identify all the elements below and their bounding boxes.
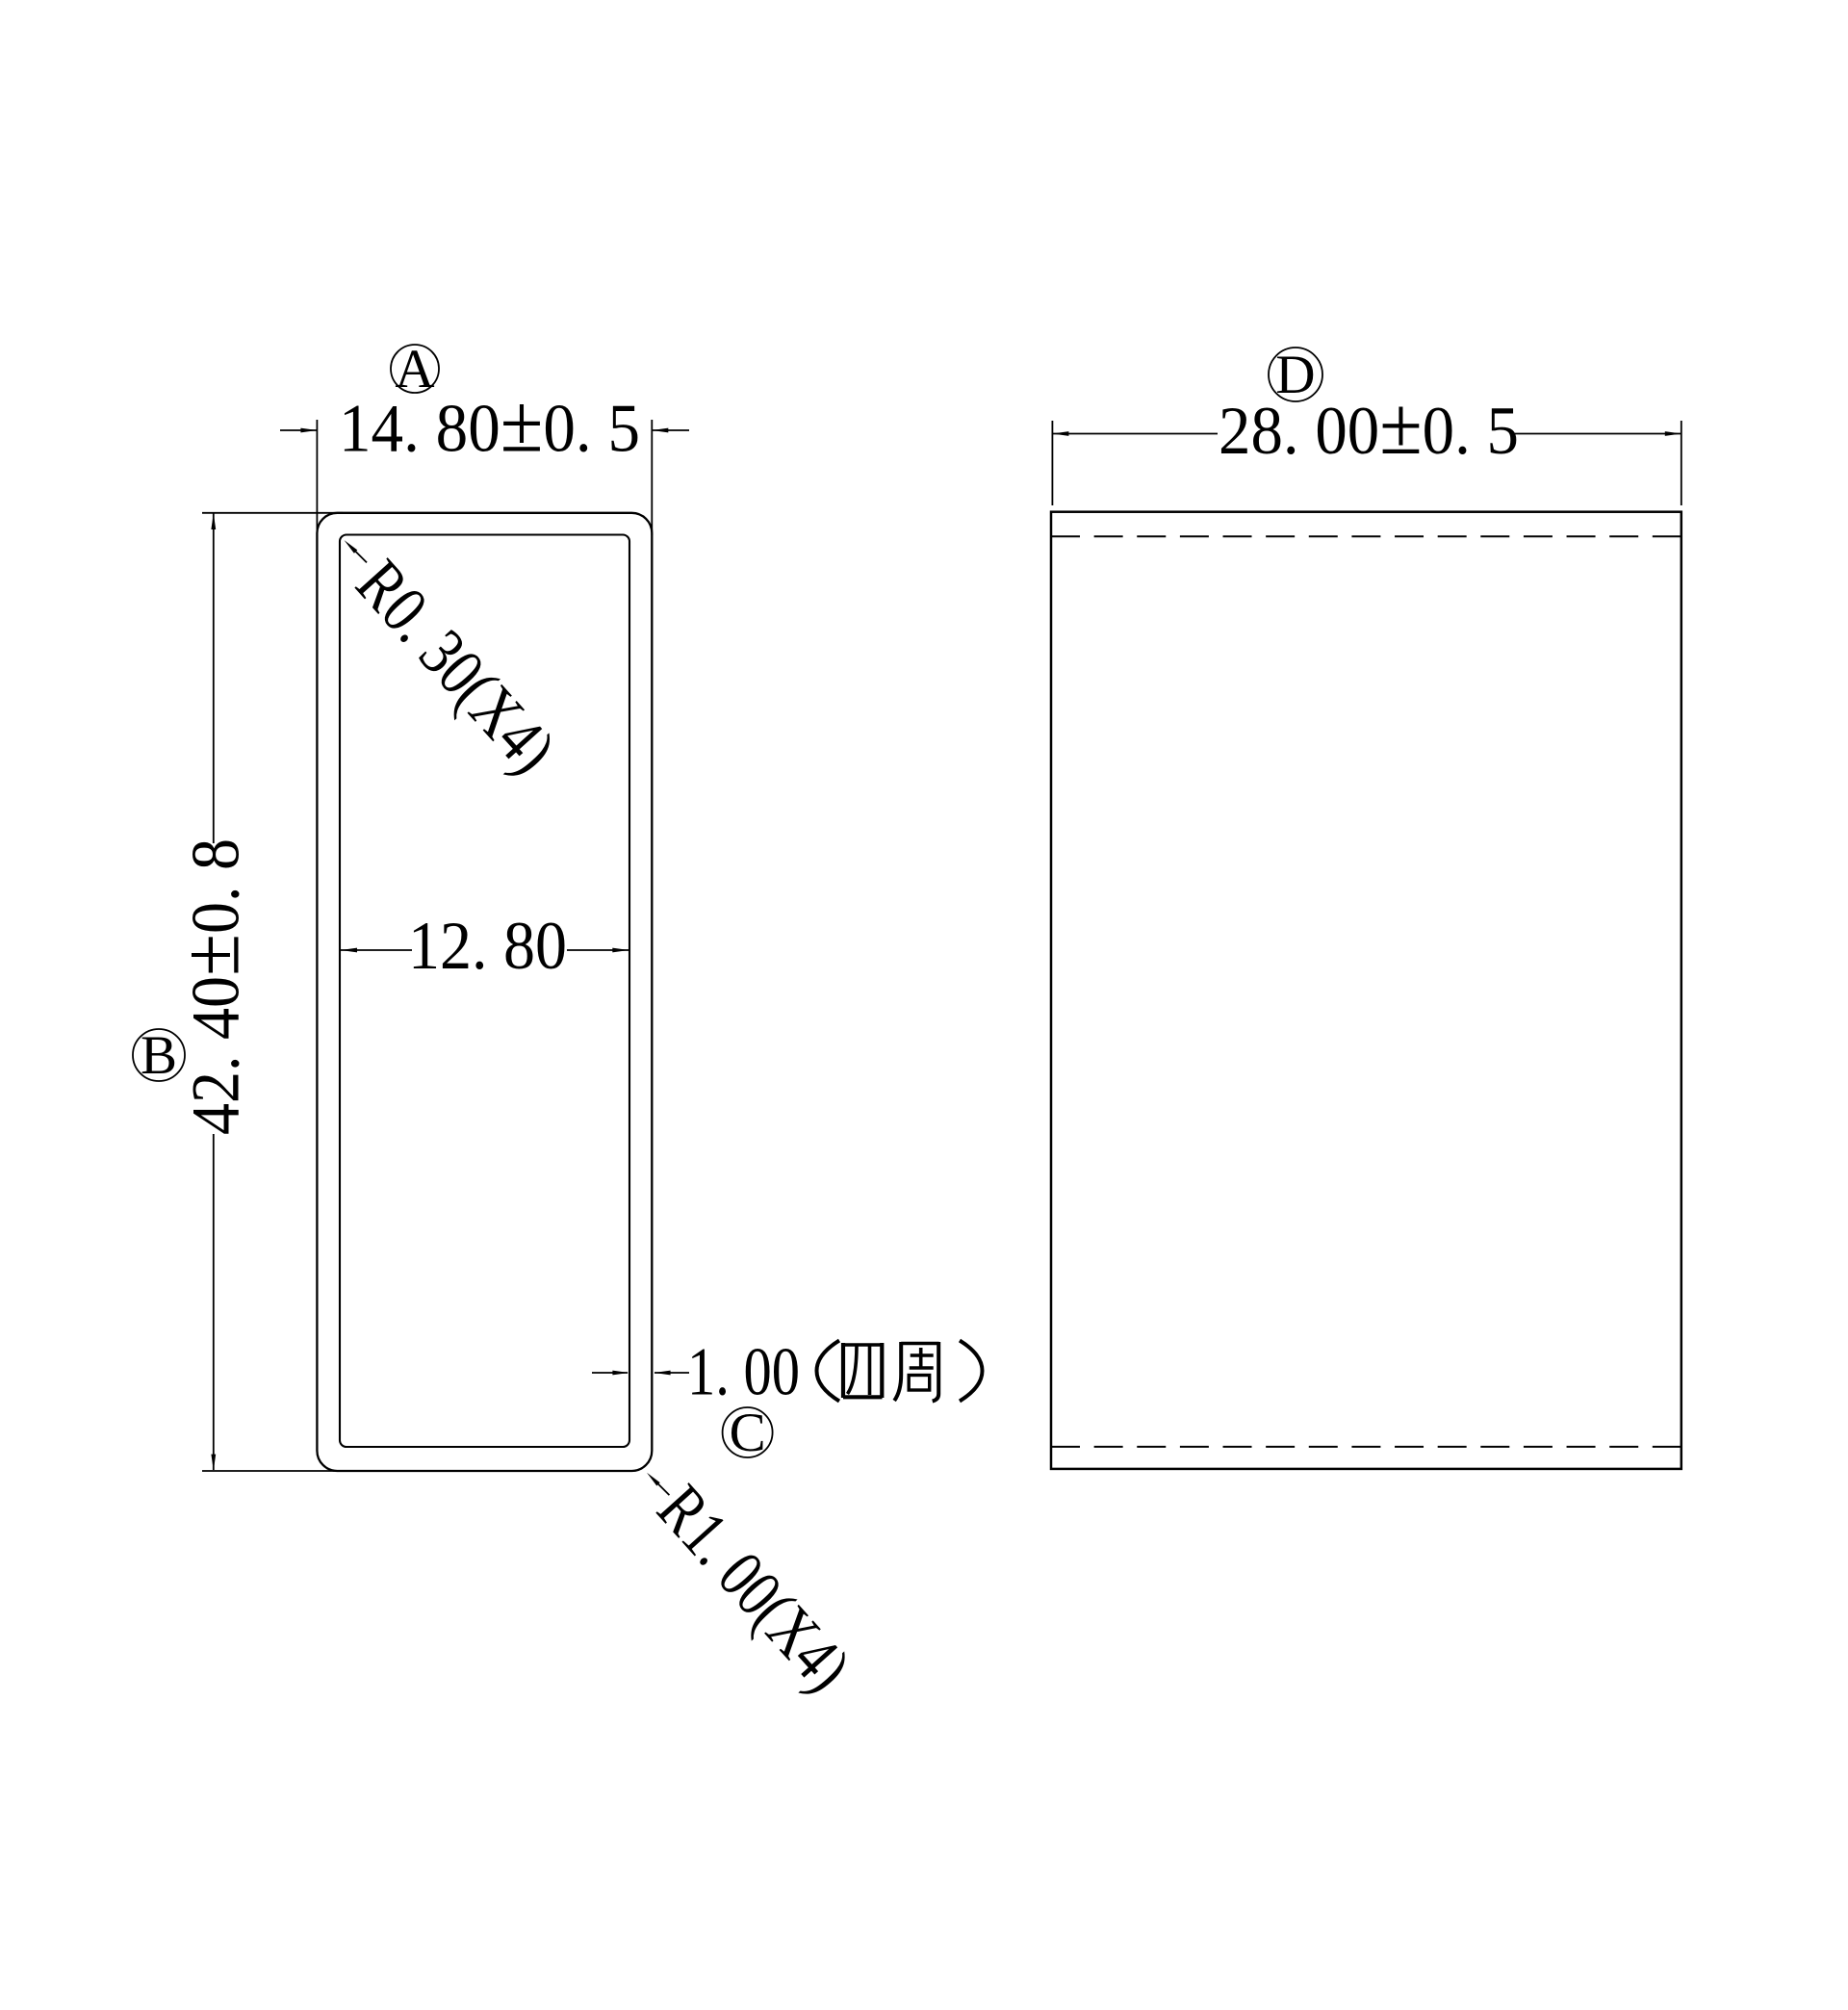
svg-text:B: B [141,1025,177,1086]
svg-text:42. 40±0. 8: 42. 40±0. 8 [165,838,257,1135]
svg-text:C: C [730,1403,766,1463]
svg-text:D: D [1275,345,1315,405]
svg-text:28. 00±0. 5: 28. 00±0. 5 [1219,379,1519,472]
svg-text:12. 80: 12. 80 [408,909,567,984]
svg-text:A: A [395,339,434,399]
svg-text:14. 80±0. 5: 14. 80±0. 5 [339,377,640,470]
svg-text:1. 00: 1. 00 [687,1335,800,1410]
